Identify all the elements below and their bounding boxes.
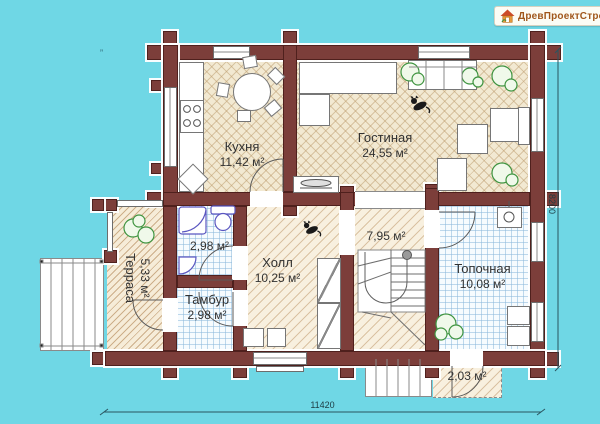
boiler-window-b (531, 302, 544, 342)
room-name: Терраса (122, 237, 138, 319)
corner-sofa-short (299, 94, 330, 126)
log-end (163, 366, 177, 378)
chair (216, 82, 230, 98)
dimension-width: 11420 (300, 400, 345, 410)
living-window-top (418, 46, 470, 59)
room-area: 7,95 м² (357, 229, 415, 243)
entrance-door-opening (450, 350, 483, 367)
boiler-unit (497, 207, 522, 228)
terrace-label: 5,33 м² Терраса (120, 237, 152, 319)
floor-plan-canvas: Кухня 11,42 м² Гостиная 24,55 м² 5,33 м²… (0, 0, 600, 424)
room-area: 2,98 м² (171, 308, 243, 322)
dimension-depth: 8200 (547, 184, 557, 224)
logo-text: ДревПроектСтрой (518, 11, 600, 22)
tambour-label: Тамбур 2,98 м² (171, 292, 243, 322)
log-end (104, 199, 117, 211)
log-end (233, 366, 247, 378)
hall-label: Холл 10,25 м² (240, 255, 315, 285)
boiler-label: Топочная 10,08 м² (430, 261, 535, 291)
hall-stair-passage (339, 210, 355, 255)
boiler-window-a (531, 222, 544, 262)
hall-window-sill (256, 366, 304, 372)
hall-stool (267, 328, 286, 347)
boiler-door-opening (424, 210, 440, 248)
room-area: 2,03 м² (438, 369, 496, 383)
kitchen-window-left (164, 87, 177, 167)
wall-kitchen-living (283, 45, 297, 192)
tv-console (293, 176, 339, 193)
corner-sofa-long (299, 62, 397, 94)
stair-hall-floor (354, 206, 425, 351)
room-area: 24,55 м² (330, 146, 440, 160)
room-name: Холл (240, 255, 315, 271)
armchair-bottom (437, 158, 467, 191)
room-name: Кухня (192, 139, 292, 155)
room-name: Тамбур (171, 292, 243, 308)
living-label: Гостиная 24,55 м² (330, 130, 440, 160)
room-name: Топочная (430, 261, 535, 277)
kitchen-door-opening (250, 191, 283, 207)
house-icon (500, 9, 515, 23)
terrace-steps (40, 258, 104, 351)
log-end (340, 366, 354, 378)
terrace-railing-left (107, 212, 113, 252)
terrace-railing-top (117, 200, 163, 207)
wardrobe-upper (317, 258, 341, 303)
log-end (545, 45, 561, 60)
living-window-right (531, 98, 544, 152)
living-radiator (518, 107, 530, 145)
log-end (92, 199, 104, 211)
room-area: 10,08 м² (430, 277, 535, 291)
washing-machine (507, 306, 530, 325)
room-area: 11,42 м² (192, 155, 292, 169)
stair-hall-label: 7,95 м² (357, 229, 415, 243)
hall-stool (243, 328, 264, 347)
hall-window-bottom (253, 352, 307, 365)
chair (242, 55, 258, 69)
bathroom-label: 2,98 м² (182, 239, 237, 253)
log-end (545, 352, 559, 366)
washing-machine (507, 326, 530, 346)
chair (237, 110, 251, 122)
log-end (425, 366, 439, 378)
kitchen-label: Кухня 11,42 м² (192, 139, 292, 169)
logo: ДревПроектСтрой (494, 6, 600, 26)
stove (180, 100, 204, 133)
window-bay-table (408, 60, 477, 90)
wardrobe-lower (317, 303, 341, 349)
coffee-table (457, 124, 488, 154)
log-end (530, 366, 545, 378)
room-name: Гостиная (330, 130, 440, 146)
room-area: 2,98 м² (182, 239, 237, 253)
log-end (283, 206, 297, 216)
porch-label: 2,03 м² (438, 369, 496, 383)
log-end (92, 352, 104, 365)
room-area: 10,25 м² (240, 271, 315, 285)
wall-bathroom-tambour (177, 275, 233, 288)
living-stair-opening (355, 191, 425, 209)
stray-mark: ” (100, 48, 103, 58)
room-area: 5,33 м² (138, 237, 152, 319)
